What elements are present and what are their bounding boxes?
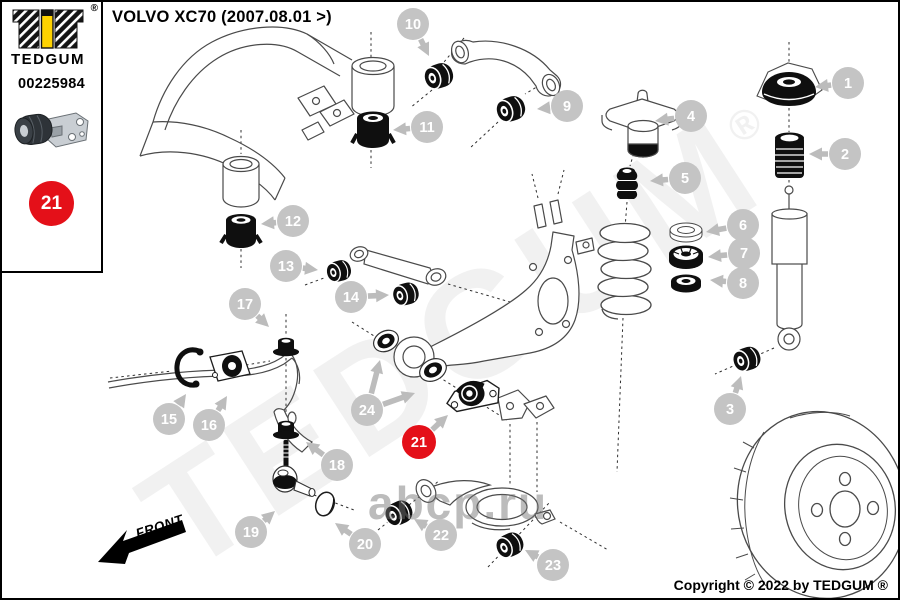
callout-arrow <box>537 101 551 114</box>
callout-arrow <box>430 415 448 432</box>
callout-arrow <box>655 113 675 126</box>
part-photo <box>2 100 101 167</box>
callout-19: 19 <box>235 516 267 548</box>
callout-arrow <box>368 289 389 302</box>
callout-17: 17 <box>229 288 261 320</box>
callout-arrow <box>335 523 353 537</box>
svg-text:9: 9 <box>563 99 571 115</box>
callout-arrow <box>306 442 325 457</box>
tedgum-logo: TEDGUM <box>2 7 101 74</box>
svg-text:1: 1 <box>844 76 852 92</box>
catalog-page: TEDGUM® <box>0 0 900 600</box>
callout-18: 18 <box>321 449 353 481</box>
callout-14: 14 <box>335 281 367 313</box>
callout-arrow <box>215 396 227 412</box>
svg-text:20: 20 <box>357 537 373 553</box>
svg-text:19: 19 <box>243 525 259 541</box>
callout-15: 15 <box>153 403 185 435</box>
callout-arrow <box>710 275 726 288</box>
callout-arrow <box>706 223 727 236</box>
svg-text:4: 4 <box>687 109 695 125</box>
page-title: VOLVO XC70 (2007.08.01 >) <box>112 8 332 27</box>
svg-text:18: 18 <box>329 458 345 474</box>
callout-arrow <box>382 391 415 407</box>
callout-arrow <box>525 550 540 562</box>
callout-11: 11 <box>411 111 443 143</box>
callout-arrow <box>303 262 319 275</box>
callout-12: 12 <box>277 205 309 237</box>
svg-text:23: 23 <box>545 558 561 574</box>
svg-text:8: 8 <box>739 276 747 292</box>
svg-text:12: 12 <box>285 214 301 230</box>
callout-20: 20 <box>349 528 381 560</box>
callout-layer: 123456789101112131415161718192021222324 <box>2 2 900 600</box>
svg-text:5: 5 <box>681 171 689 187</box>
callout-16: 16 <box>193 409 225 441</box>
svg-text:21: 21 <box>411 435 427 451</box>
callout-arrow <box>369 360 383 394</box>
callout-5: 5 <box>669 162 701 194</box>
tedgum-emblem <box>13 10 83 48</box>
svg-text:13: 13 <box>278 259 294 275</box>
callout-arrow <box>255 313 269 327</box>
callout-arrow <box>815 79 832 92</box>
callout-3: 3 <box>714 393 746 425</box>
svg-text:14: 14 <box>343 290 359 306</box>
callout-arrow <box>417 38 429 56</box>
callout-22: 22 <box>425 519 457 551</box>
callout-10: 10 <box>397 8 429 40</box>
svg-text:7: 7 <box>740 246 748 262</box>
callout-23: 23 <box>537 549 569 581</box>
callout-1: 1 <box>832 67 864 99</box>
sidebar-highlight-badge: 21 <box>29 181 74 226</box>
callout-arrow <box>731 376 743 394</box>
part-number: 00225984 <box>2 76 101 92</box>
svg-text:3: 3 <box>726 402 734 418</box>
callout-7: 7 <box>728 237 760 269</box>
callout-arrow <box>261 216 276 229</box>
callout-13: 13 <box>270 250 302 282</box>
callout-arrow <box>650 173 668 186</box>
callout-2: 2 <box>829 138 861 170</box>
svg-text:24: 24 <box>359 403 375 419</box>
callout-21: 21 <box>402 425 436 459</box>
copyright-text: Copyright © 2022 by TEDGUM ® <box>674 577 888 593</box>
svg-text:17: 17 <box>237 297 253 313</box>
callout-24: 24 <box>351 394 383 426</box>
part-info-panel: ® TEDGUM 00225984 <box>2 2 103 273</box>
callout-4: 4 <box>675 100 707 132</box>
callout-9: 9 <box>551 90 583 122</box>
registered-mark: ® <box>91 3 98 14</box>
tedgum-logo-text: TEDGUM <box>11 51 85 68</box>
svg-text:16: 16 <box>201 418 217 434</box>
callout-6: 6 <box>727 209 759 241</box>
callout-arrow <box>393 122 410 135</box>
callout-8: 8 <box>727 267 759 299</box>
svg-text:2: 2 <box>841 147 849 163</box>
svg-text:22: 22 <box>433 528 449 544</box>
svg-text:10: 10 <box>405 17 421 33</box>
callout-arrow <box>708 249 727 262</box>
svg-text:15: 15 <box>161 412 177 428</box>
svg-text:11: 11 <box>419 120 434 136</box>
svg-text:6: 6 <box>739 218 747 234</box>
callout-arrow <box>809 148 828 161</box>
